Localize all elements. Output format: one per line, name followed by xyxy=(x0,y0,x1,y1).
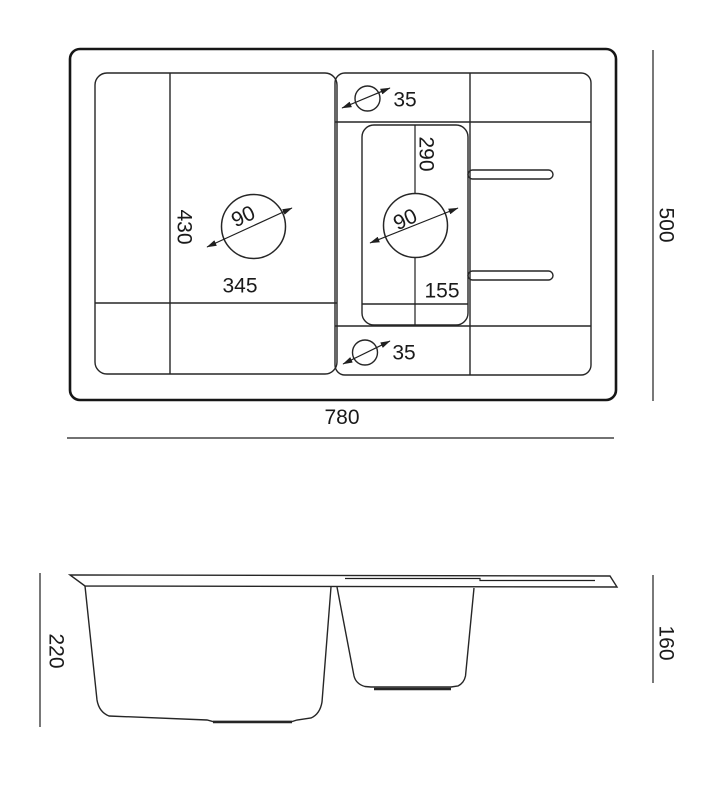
sink-drawing-page: 90 90 35 35 430 345 290 155 500 780 xyxy=(0,0,721,800)
small-bowl-width-label: 155 xyxy=(424,279,459,302)
small-bowl-profile xyxy=(337,587,474,687)
main-drain-circle xyxy=(222,195,286,259)
overall-width-label: 780 xyxy=(324,406,359,429)
overall-depth-label: 500 xyxy=(655,207,678,242)
tap-hole-bottom-circle xyxy=(353,340,378,365)
side-view: 220 160 xyxy=(40,573,678,727)
top-view: 90 90 35 35 430 345 290 155 500 780 xyxy=(67,49,678,438)
tap-hole-top-circle xyxy=(355,86,380,111)
small-bowl-depth-side-label: 160 xyxy=(655,625,678,660)
tap-hole-bottom-label: 35 xyxy=(392,341,415,364)
main-bowl-depth-label: 430 xyxy=(173,209,196,244)
tap-hole-top-label: 35 xyxy=(393,88,416,111)
sink-outline-top-view xyxy=(70,49,616,400)
sink-drawing-canvas: 90 90 35 35 430 345 290 155 500 780 xyxy=(0,0,721,800)
small-bowl-length-label: 290 xyxy=(415,136,438,171)
main-bowl-profile xyxy=(85,586,331,722)
main-bowl-depth-side-label: 220 xyxy=(45,633,68,668)
main-bowl-width-label: 345 xyxy=(222,274,257,297)
